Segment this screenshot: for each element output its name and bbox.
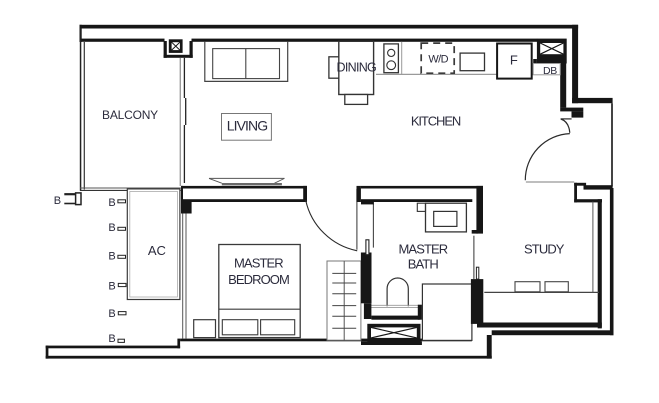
svg-text:B: B bbox=[108, 222, 115, 234]
svg-text:B: B bbox=[108, 281, 115, 293]
svg-text:LIVING: LIVING bbox=[227, 117, 268, 133]
svg-text:B: B bbox=[108, 308, 115, 320]
svg-text:STUDY: STUDY bbox=[524, 242, 565, 257]
svg-text:F: F bbox=[510, 53, 518, 68]
svg-text:W/D: W/D bbox=[428, 53, 448, 65]
svg-text:B: B bbox=[108, 197, 115, 209]
svg-text:AC: AC bbox=[148, 243, 166, 258]
svg-text:DB: DB bbox=[543, 65, 557, 77]
svg-text:BALCONY: BALCONY bbox=[102, 108, 158, 122]
svg-text:BEDROOM: BEDROOM bbox=[228, 272, 289, 287]
svg-text:KITCHEN: KITCHEN bbox=[411, 114, 461, 129]
svg-text:B: B bbox=[54, 195, 61, 207]
svg-text:B: B bbox=[108, 251, 115, 263]
svg-text:MASTER: MASTER bbox=[234, 256, 283, 271]
svg-text:BATH: BATH bbox=[408, 257, 439, 272]
svg-text:B: B bbox=[108, 333, 115, 345]
svg-text:DINING: DINING bbox=[337, 61, 377, 75]
svg-text:MASTER: MASTER bbox=[399, 242, 448, 257]
